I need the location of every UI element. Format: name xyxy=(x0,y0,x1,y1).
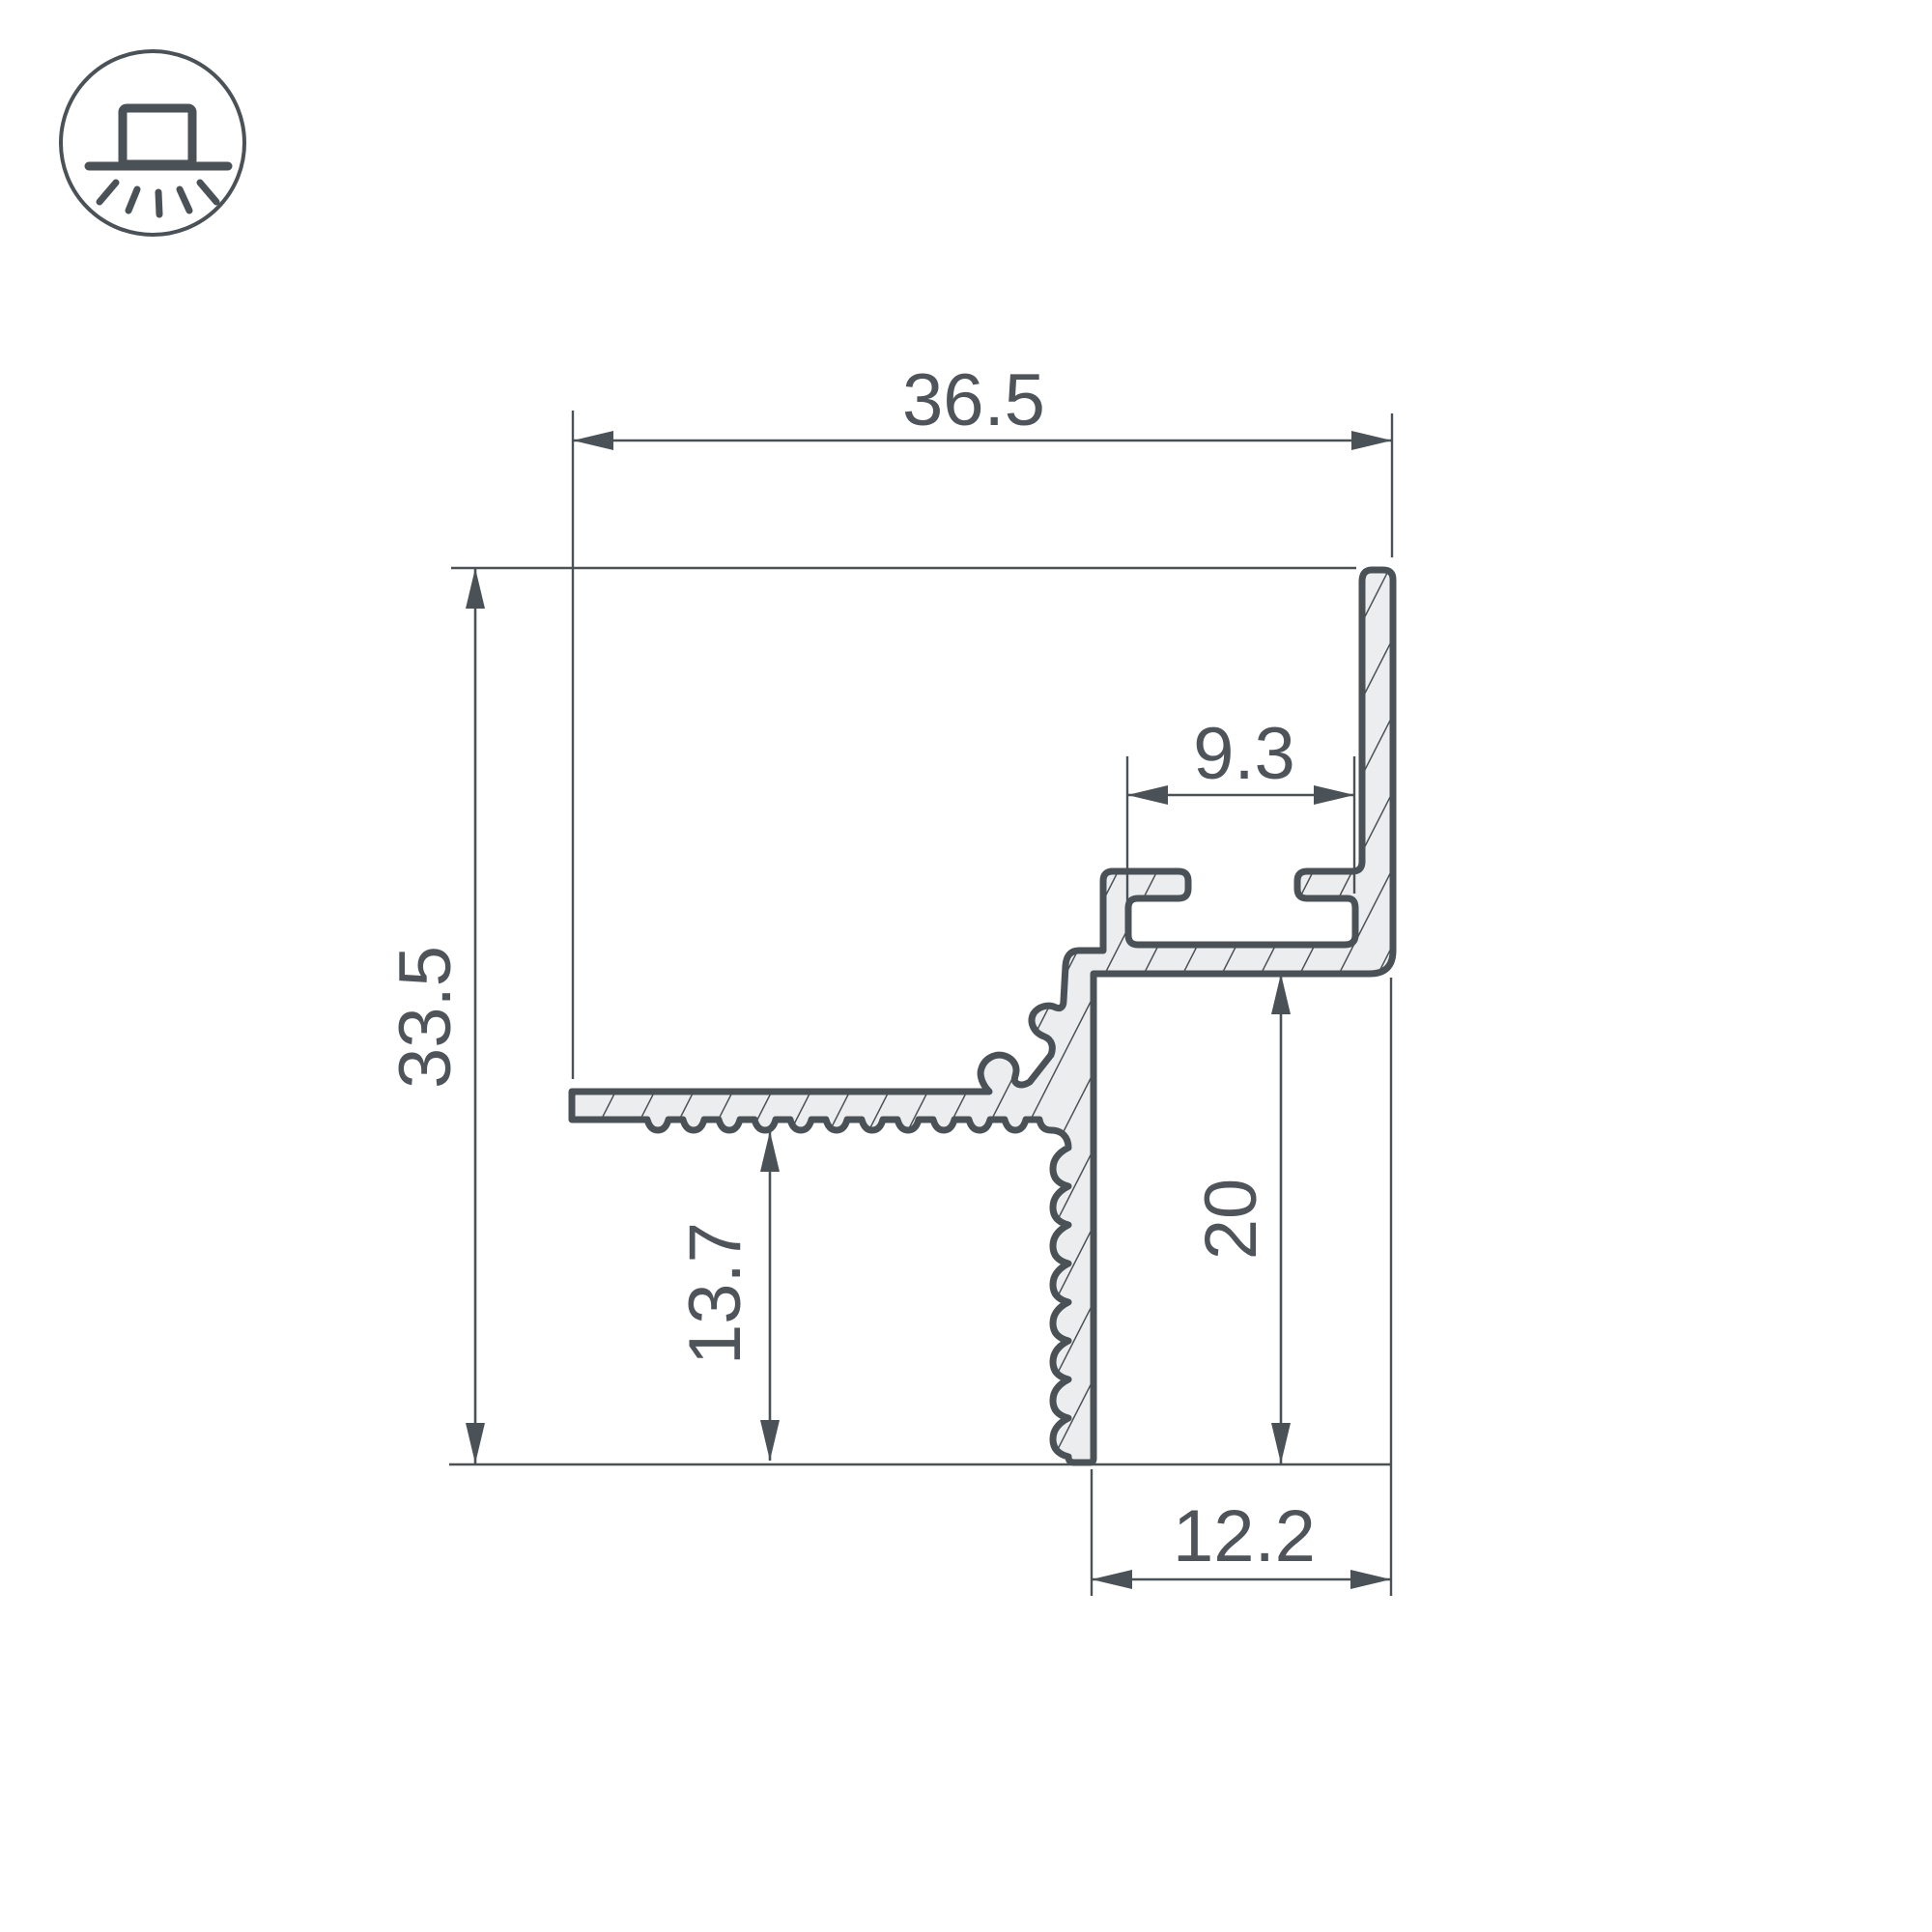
dimension-annotations xyxy=(449,411,1392,1596)
dim-overall-height-arrowhead xyxy=(466,568,485,609)
dim-bottom-width-arrowhead xyxy=(1350,1570,1391,1589)
dim-overall-height xyxy=(449,568,1391,1464)
mount-type-icon xyxy=(61,51,244,235)
dim-slot-width-arrowhead xyxy=(1314,785,1354,805)
dim-right-depth-arrowhead xyxy=(1271,974,1291,1014)
dim-flange-height xyxy=(760,1131,780,1461)
dim-label-flange-height: 13.7 xyxy=(674,1222,756,1365)
dim-overall-height-arrowhead xyxy=(466,1423,485,1463)
light-rays-icon xyxy=(99,183,216,214)
dim-label-overall-height: 33.5 xyxy=(384,946,467,1089)
dim-bottom-width-arrowhead xyxy=(1092,1570,1132,1589)
dim-label-right-depth: 20 xyxy=(1190,1179,1272,1261)
dim-top-width-arrowhead xyxy=(1351,431,1392,450)
dim-slot-width-arrowhead xyxy=(1127,785,1168,805)
luminaire-box-icon xyxy=(123,108,192,164)
icon-circle xyxy=(61,51,244,235)
dim-flange-height-arrowhead xyxy=(760,1131,780,1172)
dim-label-bottom-width: 12.2 xyxy=(1173,1495,1316,1577)
dim-right-depth xyxy=(1271,974,1291,1463)
dim-flange-height-arrowhead xyxy=(760,1420,780,1461)
dim-right-depth-arrowhead xyxy=(1271,1423,1291,1463)
dim-label-top-width: 36.5 xyxy=(902,359,1045,441)
technical-drawing: 36.5 33.5 9.3 20 13.7 12.2 xyxy=(0,0,1932,1932)
dim-label-slot-width: 9.3 xyxy=(1193,713,1295,795)
dim-top-width-arrowhead xyxy=(573,431,613,450)
drawing-canvas: 36.5 33.5 9.3 20 13.7 12.2 xyxy=(0,0,1932,1932)
